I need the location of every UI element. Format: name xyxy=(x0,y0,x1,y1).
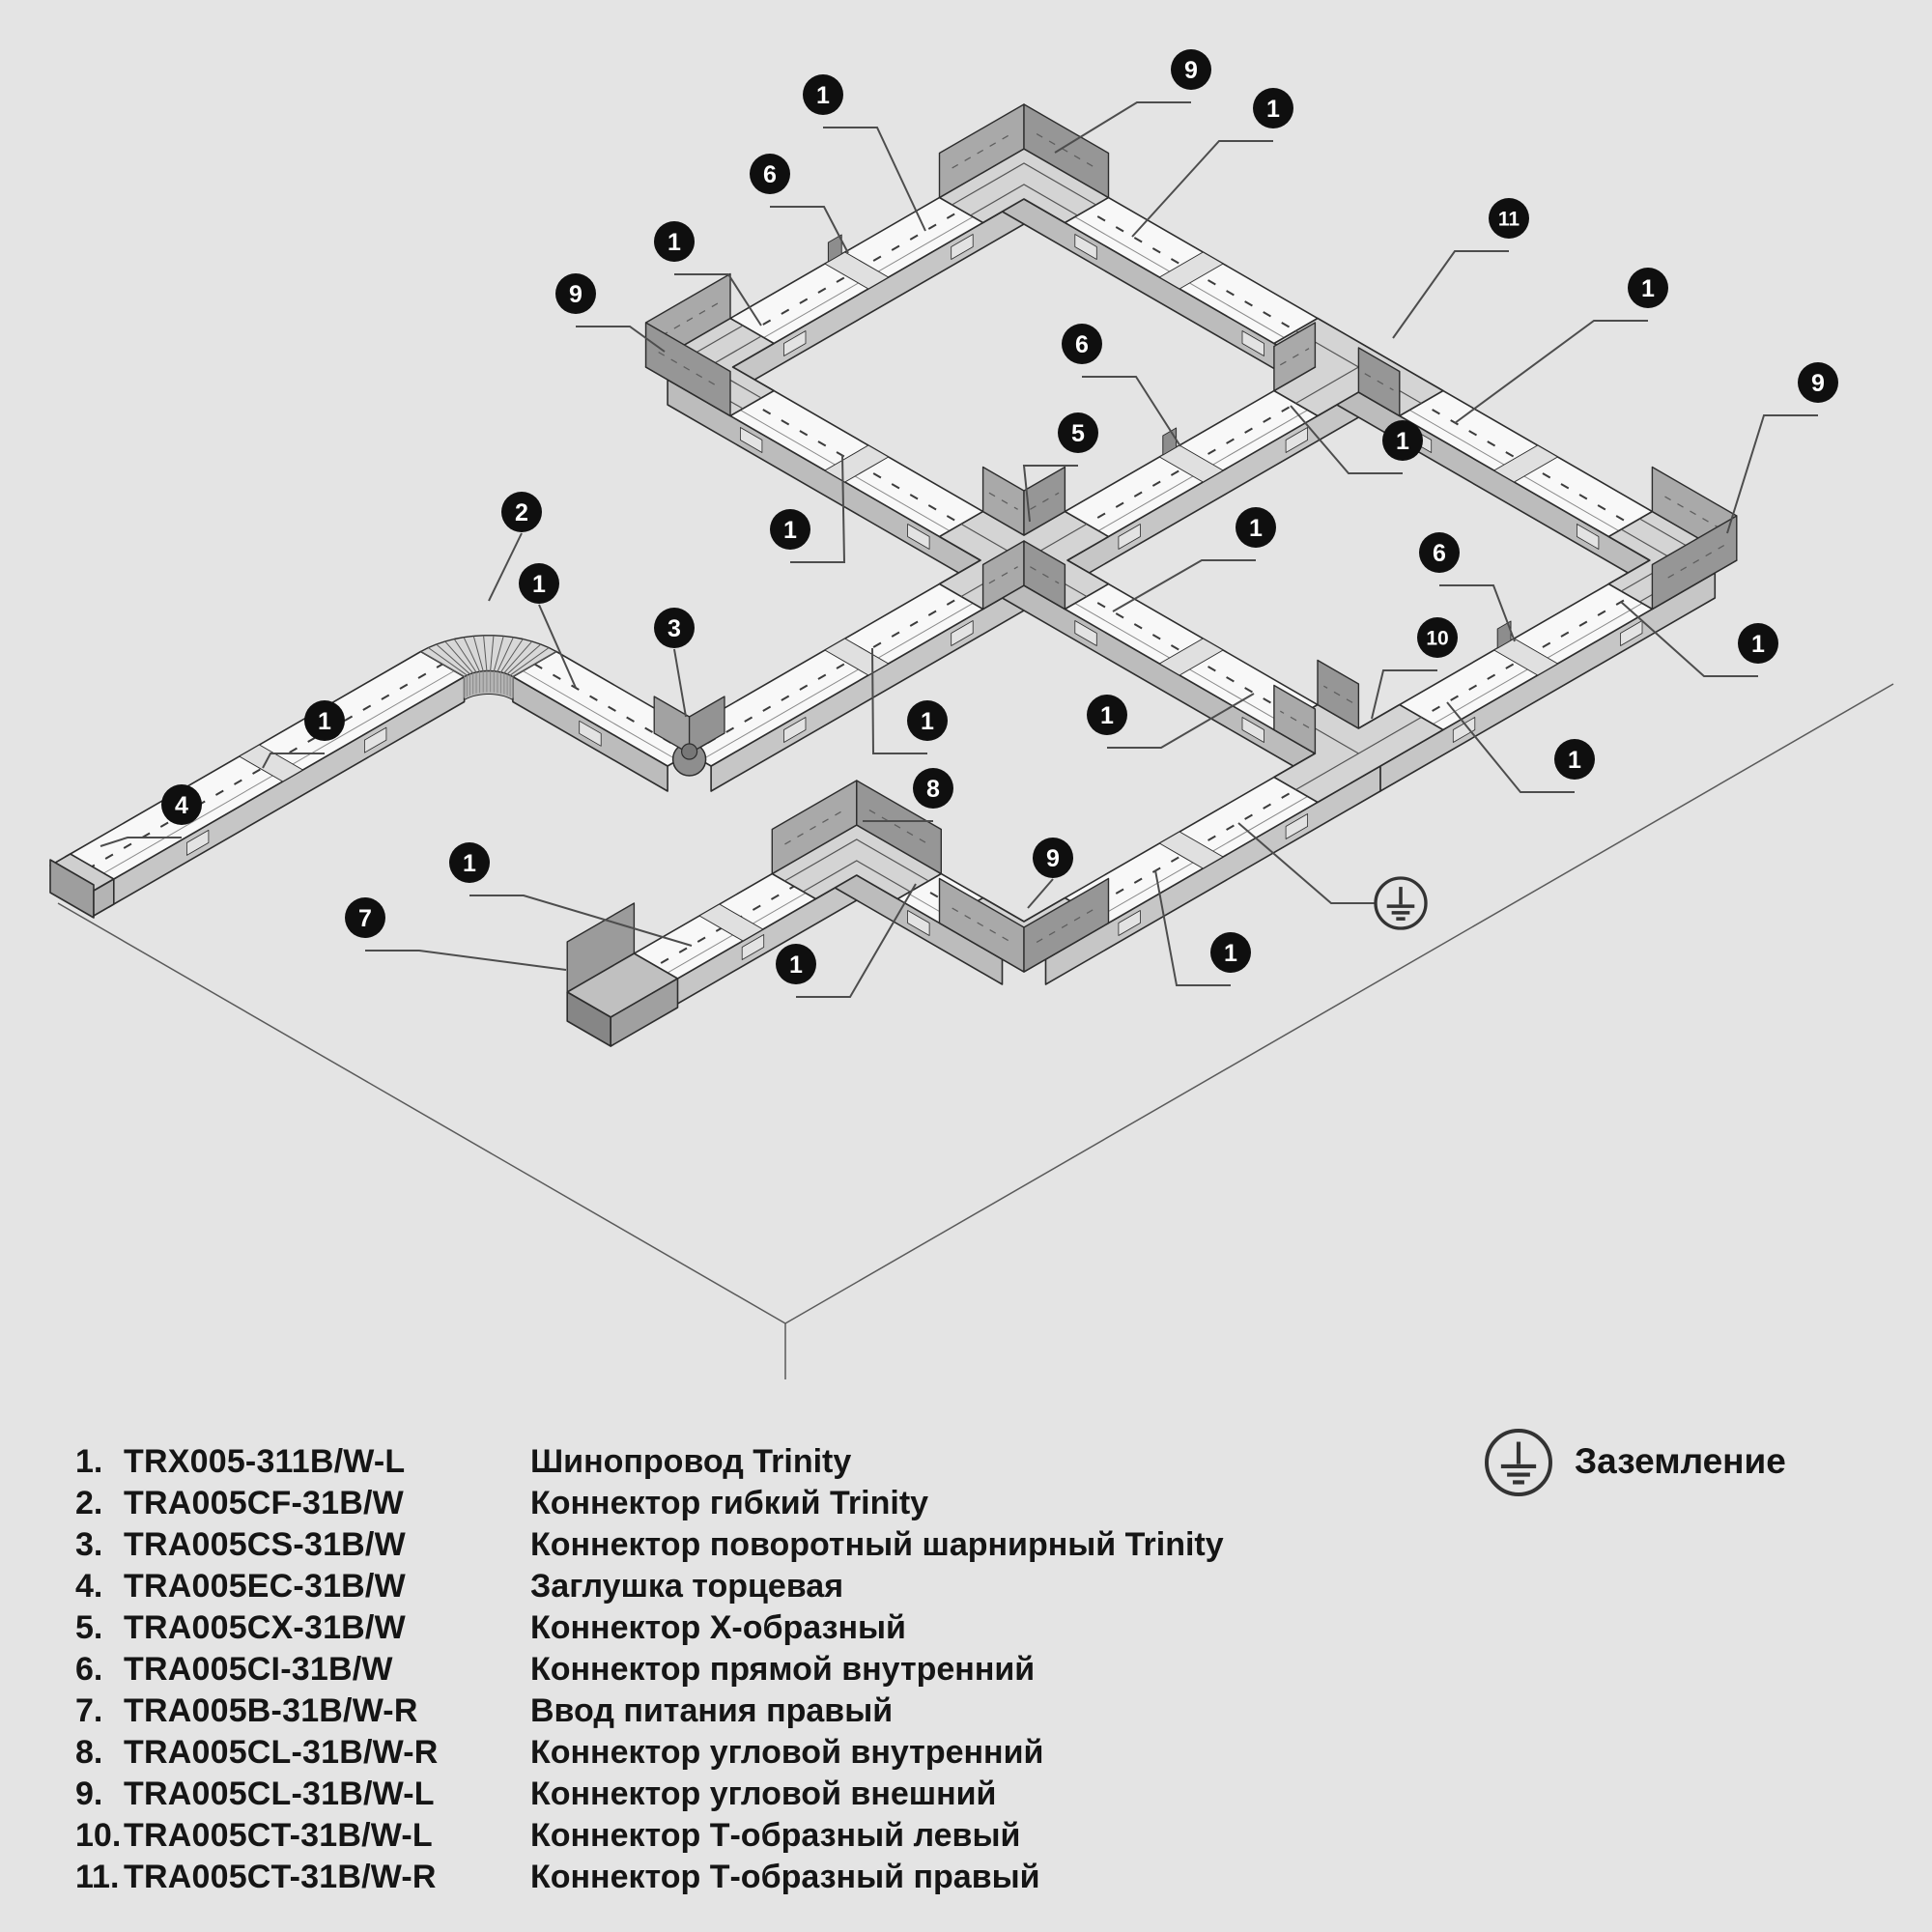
legend-number: 10. xyxy=(75,1817,121,1855)
legend-number: 8. xyxy=(75,1734,102,1772)
svg-text:1: 1 xyxy=(1641,275,1655,302)
legend-description: Шинопровод Trinity xyxy=(530,1443,851,1481)
svg-text:6: 6 xyxy=(1075,331,1089,358)
legend-description: Заглушка торцевая xyxy=(530,1568,843,1605)
legend-code: TRA005CX-31B/W xyxy=(124,1609,406,1647)
svg-text:1: 1 xyxy=(1396,428,1409,455)
callout-1: 1 xyxy=(1455,268,1668,423)
legend-number: 6. xyxy=(75,1651,102,1689)
legend-code: TRA005B-31B/W-R xyxy=(124,1692,418,1730)
svg-text:2: 2 xyxy=(515,499,528,526)
svg-text:1: 1 xyxy=(921,708,934,735)
legend-code: TRA005CT-31B/W-L xyxy=(124,1817,433,1855)
svg-text:1: 1 xyxy=(1568,747,1581,774)
floor-plane xyxy=(58,684,1893,1379)
legend-number: 2. xyxy=(75,1485,102,1522)
connector-corner-part9 xyxy=(1608,468,1737,610)
connector-corner-part9 xyxy=(646,274,775,416)
legend-number: 11. xyxy=(75,1859,119,1896)
svg-text:9: 9 xyxy=(1184,57,1198,84)
svg-text:1: 1 xyxy=(318,708,331,735)
callout-9: 9 xyxy=(555,273,665,352)
legend-number: 3. xyxy=(75,1526,102,1564)
legend-code: TRA005EC-31B/W xyxy=(124,1568,406,1605)
svg-text:1: 1 xyxy=(1249,515,1263,542)
legend-description: Коннектор прямой внутренний xyxy=(530,1651,1035,1689)
legend-description: Коннектор Т-образный правый xyxy=(530,1859,1040,1896)
svg-text:6: 6 xyxy=(1433,540,1446,567)
svg-text:6: 6 xyxy=(763,161,777,188)
legend-code: TRA005CS-31B/W xyxy=(124,1526,406,1564)
legend-description: Ввод питания правый xyxy=(530,1692,893,1730)
callout-6: 6 xyxy=(750,154,848,253)
svg-text:5: 5 xyxy=(1071,420,1085,447)
svg-text:9: 9 xyxy=(569,281,582,308)
svg-text:1: 1 xyxy=(463,850,476,877)
svg-text:9: 9 xyxy=(1811,370,1825,397)
legend-number: 5. xyxy=(75,1609,102,1647)
legend-code: TRX005-311B/W-L xyxy=(124,1443,405,1481)
legend-description: Коннектор Х-образный xyxy=(530,1609,906,1647)
page: 911611191965121116310111114819711 1.TRX0… xyxy=(0,0,1932,1932)
svg-text:1: 1 xyxy=(1224,940,1237,967)
ground-legend-icon xyxy=(1487,1431,1550,1494)
legend-number: 7. xyxy=(75,1692,102,1730)
ground-label: Заземление xyxy=(1575,1441,1786,1482)
svg-text:1: 1 xyxy=(789,952,803,979)
legend-code: TRA005CL-31B/W-R xyxy=(124,1734,439,1772)
svg-text:9: 9 xyxy=(1046,845,1060,872)
legend-code: TRA005CI-31B/W xyxy=(124,1651,393,1689)
callout-7: 7 xyxy=(345,897,566,970)
svg-text:8: 8 xyxy=(926,776,940,803)
legend-number: 9. xyxy=(75,1776,102,1813)
legend-number: 1. xyxy=(75,1443,102,1481)
svg-text:1: 1 xyxy=(783,517,797,544)
svg-text:7: 7 xyxy=(358,905,372,932)
svg-text:1: 1 xyxy=(668,229,681,256)
legend-number: 4. xyxy=(75,1568,102,1605)
svg-text:1: 1 xyxy=(532,571,546,598)
legend-code: TRA005CL-31B/W-L xyxy=(124,1776,435,1813)
legend-description: Коннектор угловой внешний xyxy=(530,1776,996,1813)
svg-text:11: 11 xyxy=(1498,209,1520,231)
svg-text:4: 4 xyxy=(175,792,188,819)
legend-description: Коннектор Т-образный левый xyxy=(530,1817,1020,1855)
svg-text:1: 1 xyxy=(816,82,830,109)
svg-text:1: 1 xyxy=(1100,702,1114,729)
callout-9: 9 xyxy=(1727,362,1838,533)
legend-description: Коннектор угловой внутренний xyxy=(530,1734,1043,1772)
svg-text:3: 3 xyxy=(668,615,681,642)
callout-11: 11 xyxy=(1393,198,1529,338)
svg-text:10: 10 xyxy=(1426,628,1448,650)
track-run xyxy=(66,652,465,908)
callout-1: 1 xyxy=(449,842,692,946)
legend-code: TRA005CT-31B/W-R xyxy=(124,1859,437,1896)
callout-1: 1 xyxy=(1132,88,1293,237)
svg-text:1: 1 xyxy=(1266,96,1280,123)
legend-description: Коннектор гибкий Trinity xyxy=(530,1485,928,1522)
legend-code: TRA005CF-31B/W xyxy=(124,1485,404,1522)
svg-text:1: 1 xyxy=(1751,631,1765,658)
legend-description: Коннектор поворотный шарнирный Trinity xyxy=(530,1526,1224,1564)
